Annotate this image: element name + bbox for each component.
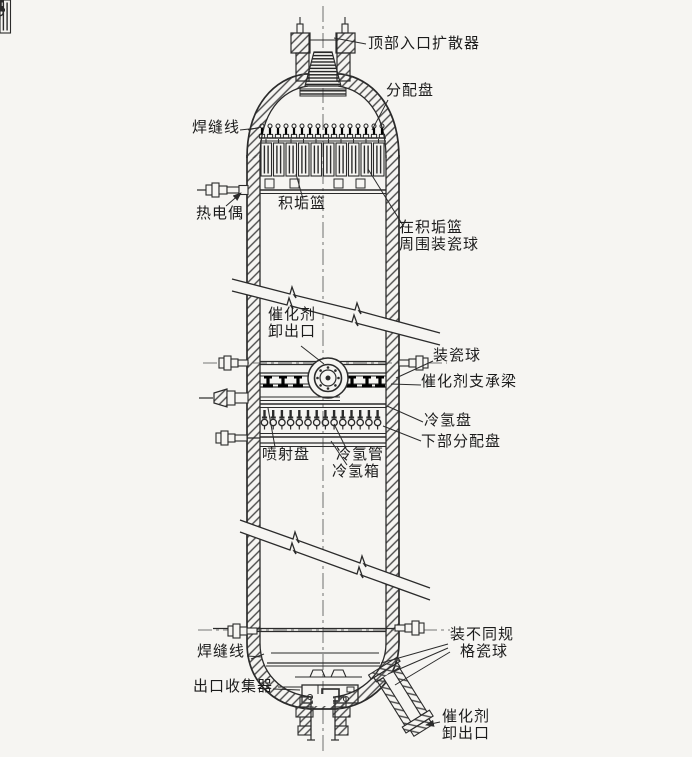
label-thermocouple: 热电偶 bbox=[196, 206, 244, 223]
label-cold-hydrogen-tray: 冷氢盘 bbox=[424, 413, 472, 430]
right-wall bbox=[386, 155, 399, 643]
label-distribution-tray: 分配盘 bbox=[386, 83, 434, 100]
thermocouple-nozzle-top bbox=[197, 183, 248, 197]
catalyst-unload-nozzle bbox=[369, 657, 438, 739]
flange-bolts bbox=[297, 17, 348, 33]
label-catalyst-unload-bottom: 催化剂卸出口 bbox=[442, 709, 490, 743]
break-band-upper bbox=[232, 279, 440, 345]
catalyst-dump-port bbox=[308, 358, 348, 398]
label-cold-hydrogen-pipe: 冷氢管 bbox=[336, 447, 384, 464]
label-balls-around-basket: 在积垢篮周围装瓷球 bbox=[399, 220, 479, 254]
reactor-diagram-figure: 顶部入口扩散器 分配盘 焊缝线 热电偶 积垢篮 在积垢篮周围装瓷球 催化剂卸出口… bbox=[0, 0, 692, 757]
label-outlet-collector: 出口收集器 bbox=[193, 679, 273, 696]
scale-baskets bbox=[0, 0, 386, 194]
ball-layers bbox=[266, 653, 381, 677]
bubble-cap-row-cold-tray bbox=[261, 410, 381, 430]
reactor-vessel-drawing bbox=[0, 0, 692, 757]
diffuser-plate bbox=[300, 89, 346, 96]
left-wall bbox=[247, 155, 260, 643]
label-catalyst-unload-mid: 催化剂卸出口 bbox=[268, 307, 316, 341]
label-catalyst-support-beam: 催化剂支承梁 bbox=[421, 374, 517, 391]
label-cold-hydrogen-box: 冷氢箱 bbox=[332, 464, 380, 481]
break-band-lower bbox=[240, 520, 430, 600]
bubble-cap-row-top bbox=[259, 124, 384, 138]
label-spray-tray: 喷射盘 bbox=[262, 447, 310, 464]
label-porcelain-balls: 装瓷球 bbox=[433, 348, 481, 365]
label-weld-line-top: 焊缝线 bbox=[192, 120, 240, 137]
label-different-spec-balls: 装不同规格瓷球 bbox=[450, 627, 514, 661]
label-scale-basket: 积垢篮 bbox=[278, 196, 326, 213]
label-lower-distribution-tray: 下部分配盘 bbox=[421, 434, 501, 451]
label-weld-line-bottom: 焊缝线 bbox=[197, 644, 245, 661]
label-top-inlet-diffuser: 顶部入口扩散器 bbox=[368, 36, 480, 53]
